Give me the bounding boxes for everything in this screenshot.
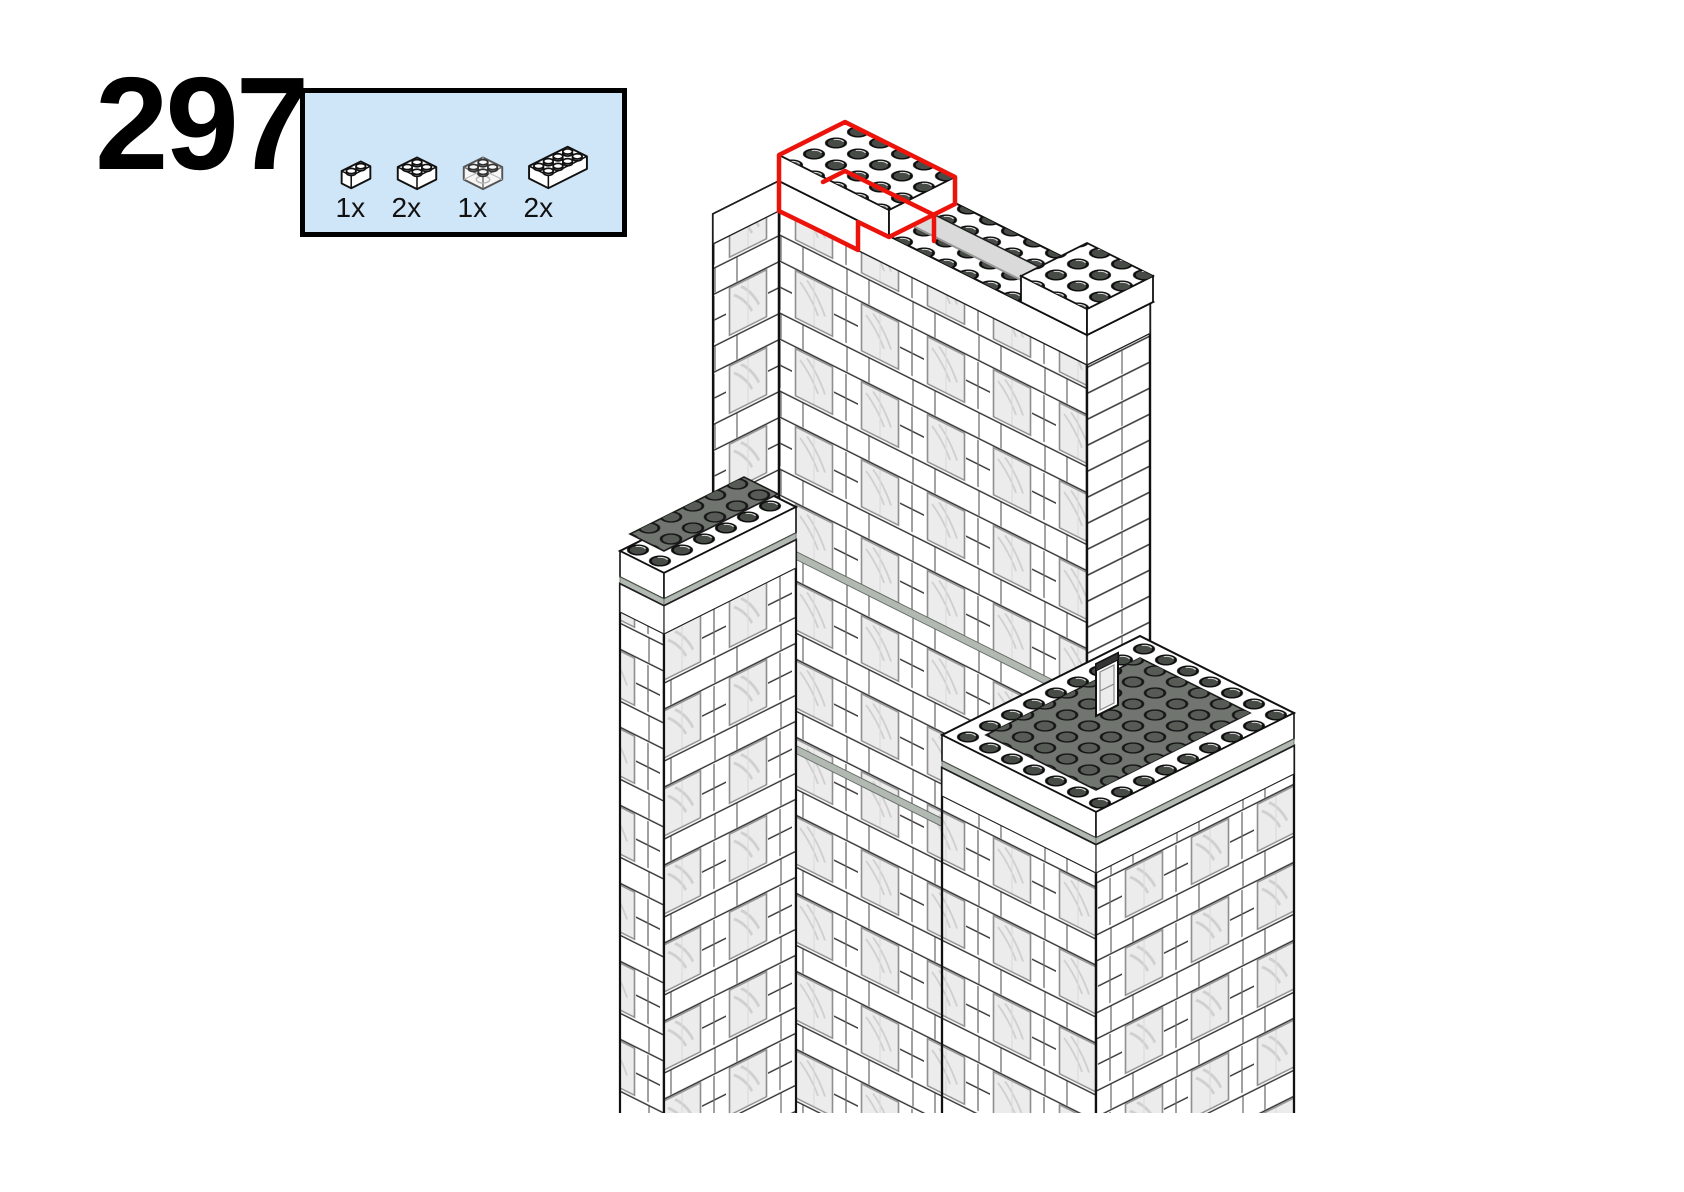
right-wing — [942, 636, 1294, 1120]
crop-mask — [0, 1113, 1684, 1192]
left-wing — [620, 477, 796, 1120]
instruction-illustration — [0, 0, 1684, 1192]
roof-door — [1096, 653, 1118, 716]
instruction-page: 297 1x — [0, 0, 1684, 1192]
